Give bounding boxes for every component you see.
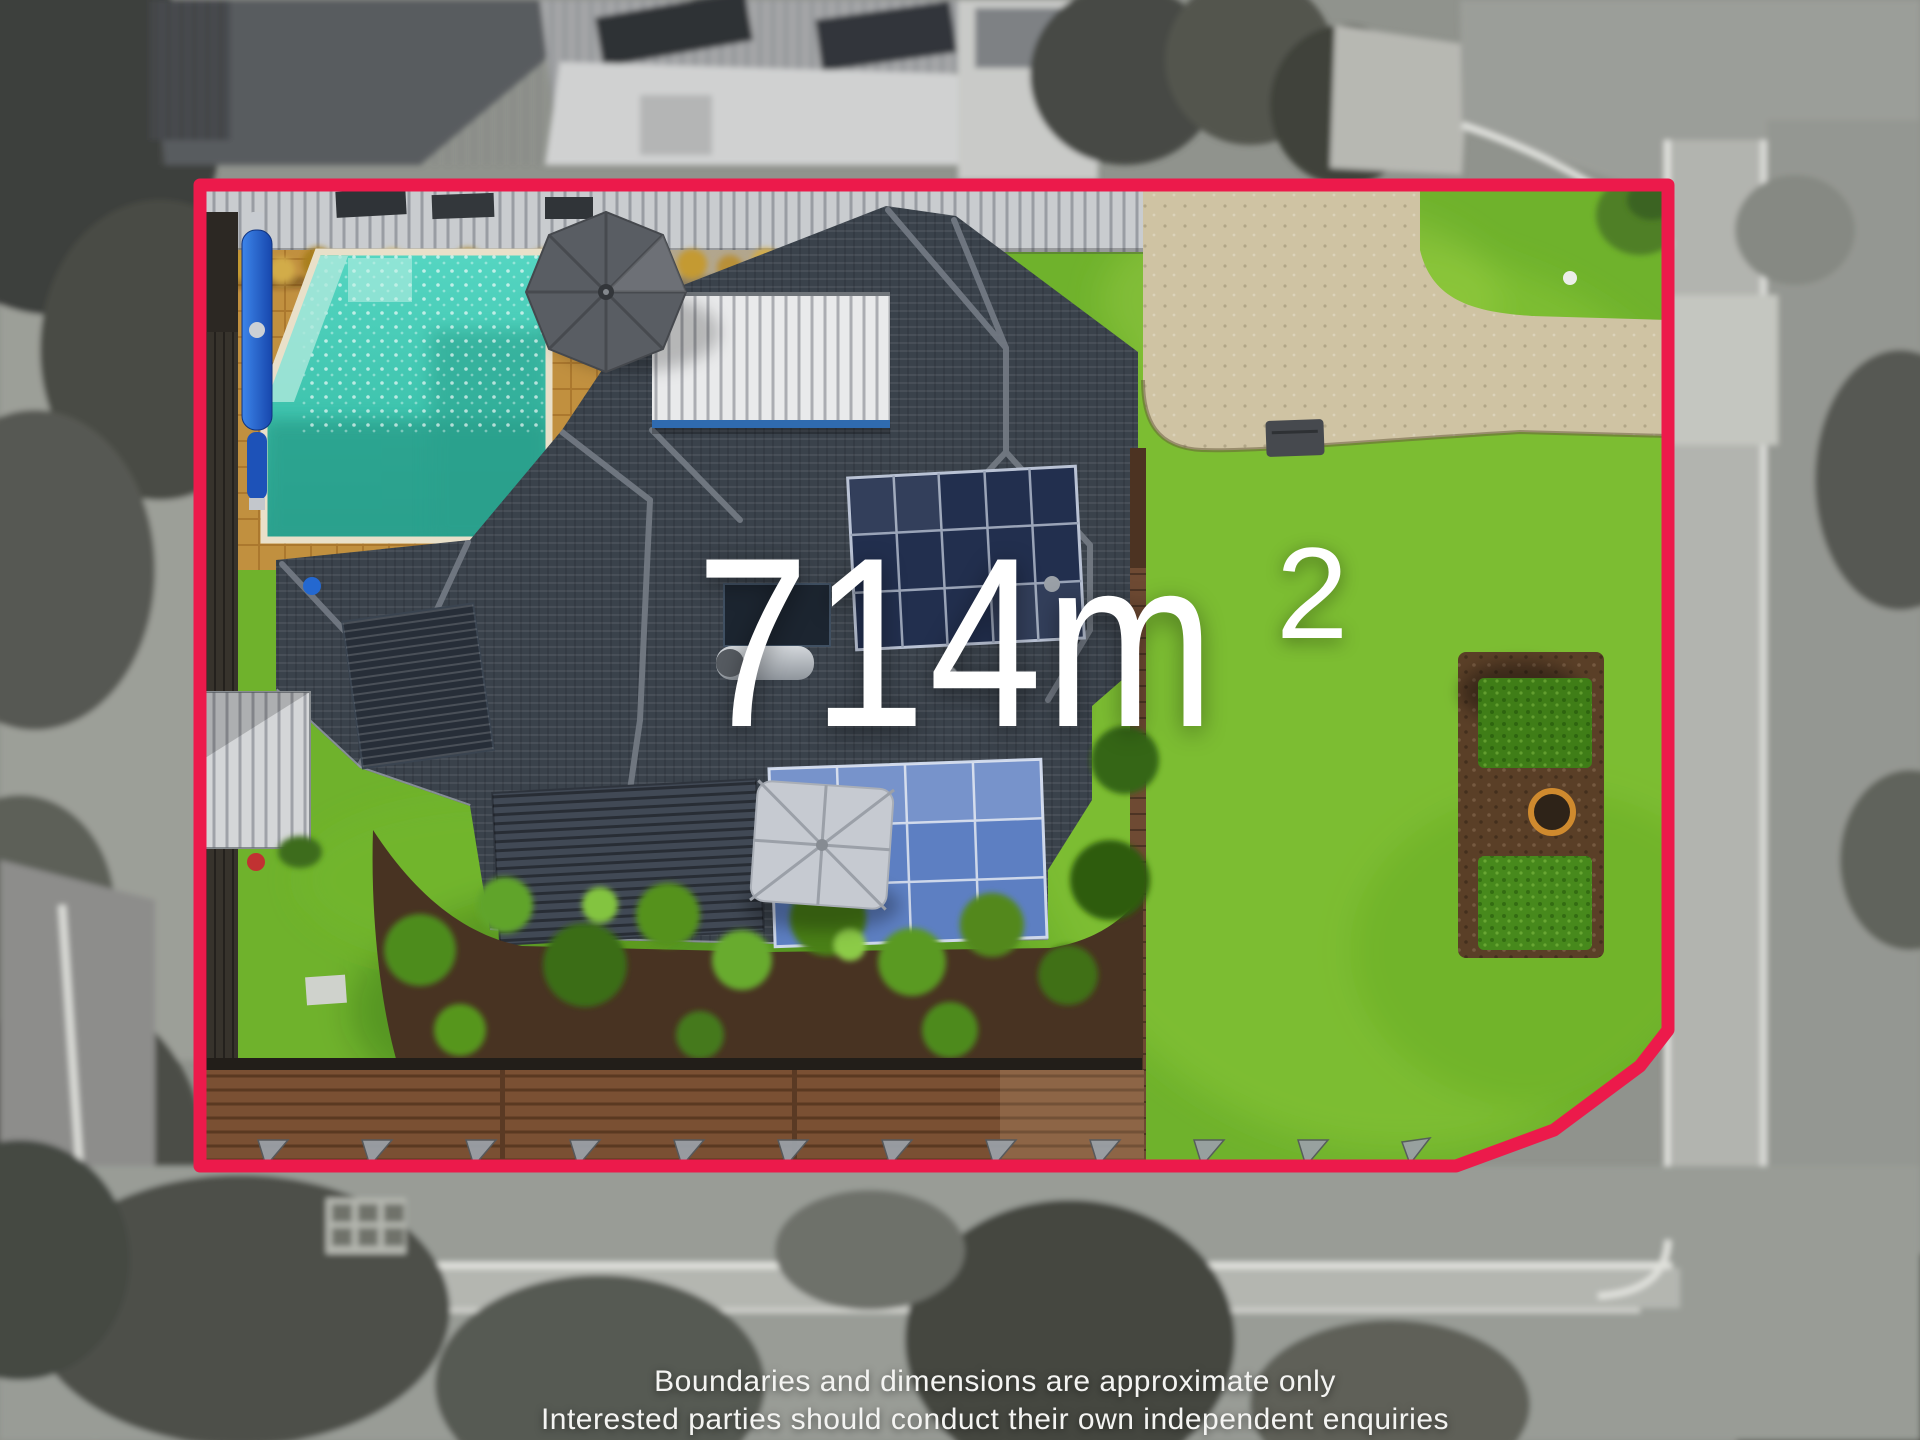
roof-vent bbox=[335, 188, 406, 218]
louvre-roof bbox=[492, 779, 764, 945]
paver-grid bbox=[326, 1198, 406, 1254]
disclaimer-line-2: Interested parties should conduct their … bbox=[35, 1402, 1920, 1438]
bench bbox=[1265, 419, 1324, 457]
back-shed-roof bbox=[204, 182, 1148, 254]
white-ball bbox=[1563, 271, 1577, 285]
roof-vent bbox=[1044, 576, 1060, 592]
aerial-scene bbox=[0, 0, 1920, 1440]
hot-water-tank bbox=[716, 646, 814, 680]
red-garden-item bbox=[247, 853, 265, 871]
disclaimer-line-1: Boundaries and dimensions are approximat… bbox=[35, 1364, 1920, 1400]
aerial-property-photo: 714m 2 Boundaries and dimensions are app… bbox=[0, 0, 1920, 1440]
garden-shed bbox=[202, 692, 310, 848]
property-interior bbox=[195, 175, 1800, 1172]
umbrella-light bbox=[744, 780, 900, 931]
garden-bed bbox=[1458, 652, 1604, 958]
pool-toy bbox=[303, 577, 321, 595]
stepping-stone bbox=[305, 975, 347, 1006]
planter-pot bbox=[1531, 791, 1573, 833]
solar-array-dark bbox=[848, 466, 1085, 650]
skylight bbox=[724, 584, 830, 646]
roof-vent bbox=[938, 666, 958, 686]
slatted-panel bbox=[342, 603, 493, 768]
